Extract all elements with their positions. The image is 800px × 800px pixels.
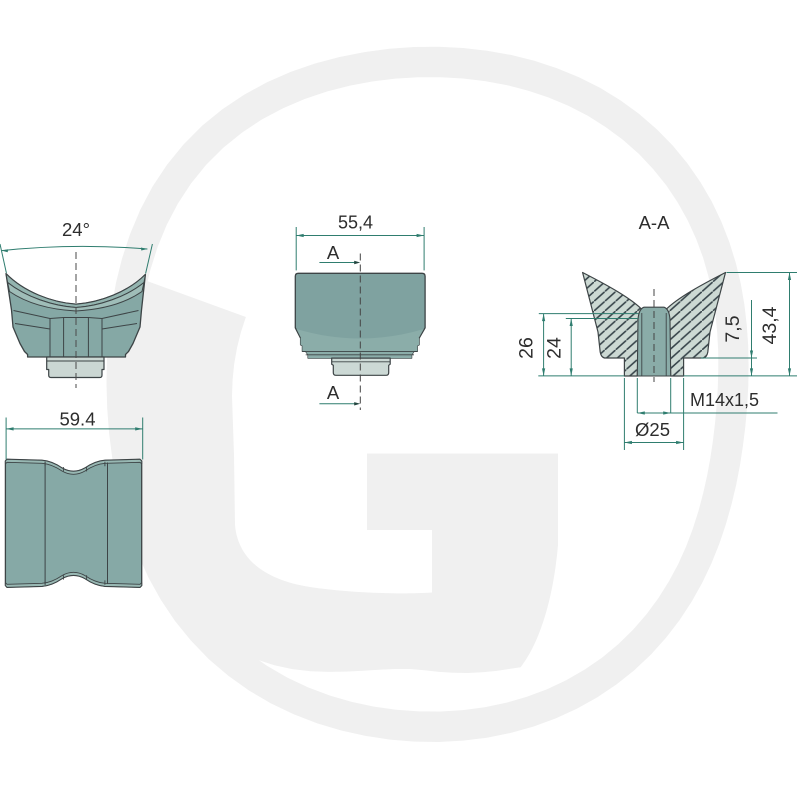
svg-text:Ø25: Ø25 (635, 419, 670, 440)
svg-text:A: A (327, 382, 340, 403)
svg-text:26: 26 (516, 337, 538, 359)
svg-text:59.4: 59.4 (59, 409, 95, 430)
svg-text:24: 24 (544, 337, 566, 359)
svg-text:A: A (327, 242, 340, 263)
svg-text:7,5: 7,5 (722, 315, 744, 342)
svg-text:A-A: A-A (639, 212, 671, 233)
svg-text:M14x1,5: M14x1,5 (690, 390, 759, 410)
svg-text:24°: 24° (62, 219, 90, 240)
svg-text:55,4: 55,4 (338, 213, 373, 233)
svg-text:43,4: 43,4 (759, 306, 781, 344)
